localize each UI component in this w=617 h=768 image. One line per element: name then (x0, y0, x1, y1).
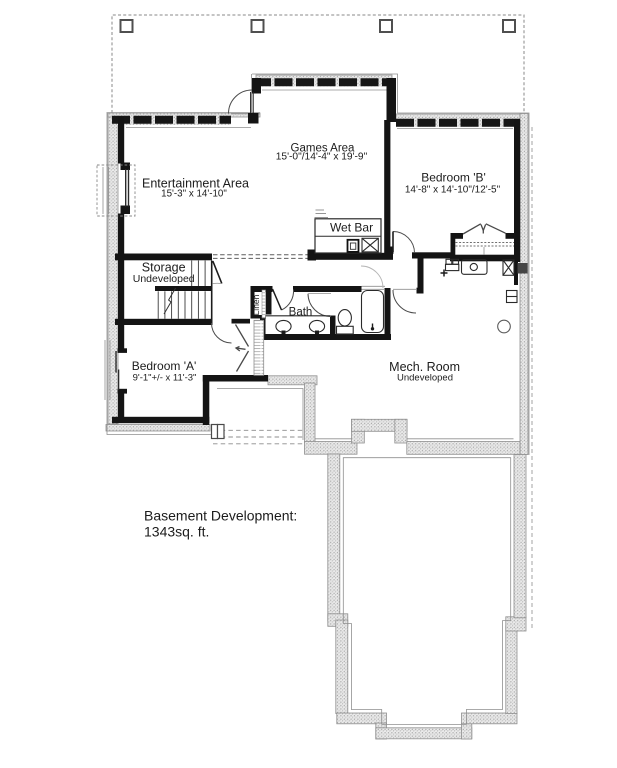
svg-text:Linen: Linen (251, 294, 261, 315)
svg-text:15'-0"/14'-4" x 19'-9": 15'-0"/14'-4" x 19'-9" (276, 152, 368, 163)
svg-text:15'-3" x 14'-10": 15'-3" x 14'-10" (161, 188, 227, 199)
svg-text:Undeveloped: Undeveloped (133, 273, 195, 285)
svg-text:Bedroom 'B': Bedroom 'B' (421, 170, 486, 184)
svg-text:Wet Bar: Wet Bar (330, 220, 373, 234)
svg-text:Bedroom 'A': Bedroom 'A' (132, 359, 197, 373)
svg-text:9'-1"+/- x 11'-3": 9'-1"+/- x 11'-3" (133, 373, 197, 384)
svg-text:14'-8" x 14'-10"/12'-5": 14'-8" x 14'-10"/12'-5" (405, 185, 501, 196)
svg-text:1343sq. ft.: 1343sq. ft. (144, 524, 209, 540)
svg-text:Undeveloped: Undeveloped (397, 373, 453, 384)
svg-text:Bath: Bath (289, 306, 313, 318)
svg-text:Basement Development:: Basement Development: (144, 508, 297, 524)
